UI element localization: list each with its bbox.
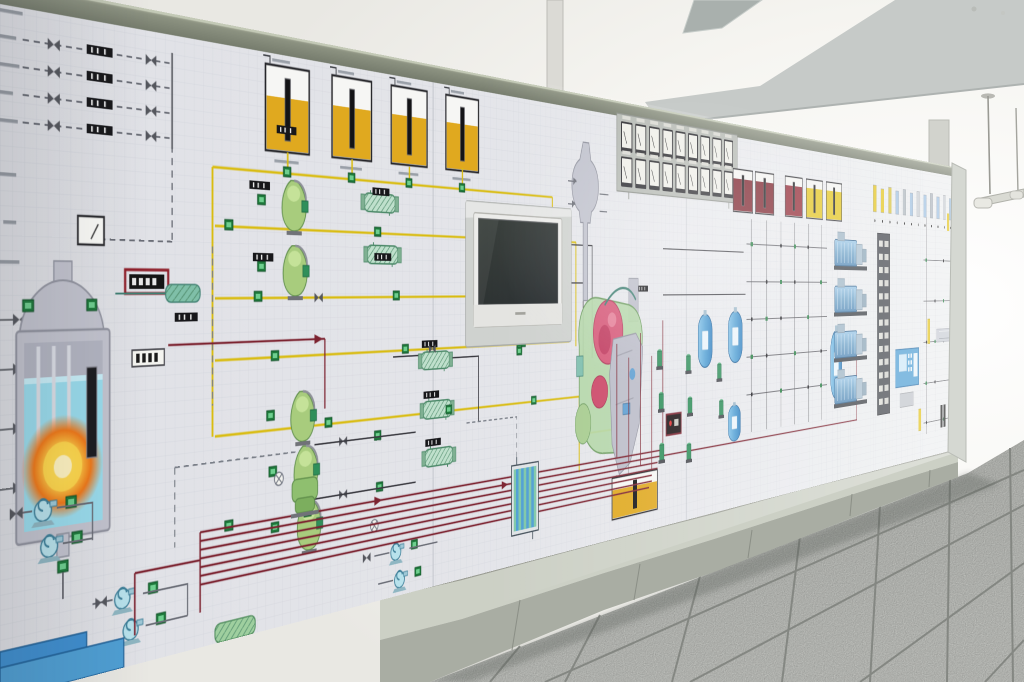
valve-box (926, 381, 927, 384)
valve-box (926, 258, 927, 261)
valve-dot (794, 280, 796, 284)
terminal-label (879, 306, 883, 312)
terminal-label (879, 333, 883, 339)
gauge-face (713, 171, 721, 194)
terminal-label (885, 254, 889, 260)
terminal-label (879, 398, 883, 405)
terminal-label (879, 293, 883, 299)
gauge-face (725, 172, 733, 194)
gauge-face (689, 167, 697, 190)
gauge-face (636, 160, 645, 185)
ceiling-fixture-dot (972, 7, 977, 12)
terminal-label (879, 240, 883, 246)
valve-box (794, 351, 796, 355)
gauge-face (701, 169, 709, 192)
day-tank (444, 87, 478, 172)
terminal-label (879, 267, 883, 273)
indicator-bar (917, 191, 920, 216)
indicator-bar (888, 187, 891, 213)
gauge-face (676, 133, 684, 157)
indicator-bar (903, 189, 906, 215)
valve-box (943, 299, 944, 302)
service-tank (755, 172, 774, 215)
indicator-bar (924, 195, 927, 218)
valve-box (951, 260, 952, 263)
terminal-label (885, 358, 889, 365)
monitor-logo (515, 312, 525, 315)
valve-box (820, 280, 822, 284)
terminal-label (885, 319, 889, 325)
valve-box (751, 242, 753, 246)
terminal-label (885, 371, 889, 378)
valve-box (820, 383, 822, 387)
monitor-bottom-bezel (474, 303, 562, 327)
gauge-face (650, 128, 659, 153)
valve-dot (766, 280, 768, 284)
gauge-face (725, 141, 733, 164)
valve-box (751, 355, 753, 359)
terminal-label (879, 320, 883, 326)
indicator-bar (910, 193, 913, 216)
terminal-label (885, 345, 889, 351)
terminal-label (885, 397, 889, 404)
terminal-label (885, 280, 889, 286)
day-tank (330, 67, 372, 161)
digital-counter (132, 349, 164, 367)
analog-meter (78, 216, 104, 245)
valve-dot (935, 299, 936, 302)
terminal-label (885, 384, 889, 391)
indicator-bar (930, 193, 933, 218)
valve-dot (951, 299, 952, 302)
valve-box (794, 244, 796, 248)
indicator-bar (943, 195, 946, 219)
valve-box (951, 378, 952, 381)
indicator-bar (949, 199, 952, 221)
valve-box (807, 315, 809, 319)
gauge-face (701, 137, 709, 160)
service-tank (785, 176, 802, 218)
terminal-label (879, 280, 883, 286)
indicator-bar (937, 197, 940, 219)
terminal-label (885, 293, 889, 299)
gauge-face (713, 139, 721, 162)
gauge-face (663, 130, 672, 154)
indicator-bar (896, 191, 899, 215)
service-tank (826, 182, 841, 221)
terminal-label (879, 254, 883, 260)
gauge-face (676, 166, 684, 190)
plate-heat-exchanger (512, 454, 539, 545)
gauge-face (650, 162, 659, 186)
day-tank (389, 77, 427, 167)
terminal-label (885, 241, 889, 247)
control-room-scene (0, 0, 1024, 682)
gauge-face (689, 135, 697, 159)
terminal-label (879, 372, 883, 379)
terminal-label (885, 306, 889, 312)
ceiling-fixture-dot (1001, 11, 1005, 15)
light-lamp-head (974, 198, 992, 208)
alarm-indicator-red (666, 413, 681, 436)
valve-box (780, 280, 782, 284)
terminal-label (879, 359, 883, 366)
lcd-monitor (466, 201, 572, 359)
service-tank (733, 169, 753, 213)
valve-box (934, 340, 935, 343)
service-tank (806, 179, 822, 219)
terminal-label (885, 267, 889, 273)
gauge-face (622, 158, 631, 183)
terminal-label (885, 332, 889, 338)
gauge-face (663, 164, 672, 188)
terminal-strip (877, 233, 890, 415)
day-tank (263, 55, 309, 155)
gauge-face (622, 123, 631, 149)
terminal-label (879, 385, 883, 392)
terminal-label (879, 346, 883, 352)
light-lamp-head (1010, 191, 1023, 199)
valve-box (780, 388, 782, 392)
indicator-bar (873, 185, 876, 212)
gauge-face (636, 126, 645, 151)
indicator-bar (881, 189, 884, 213)
valve-box (766, 317, 768, 321)
